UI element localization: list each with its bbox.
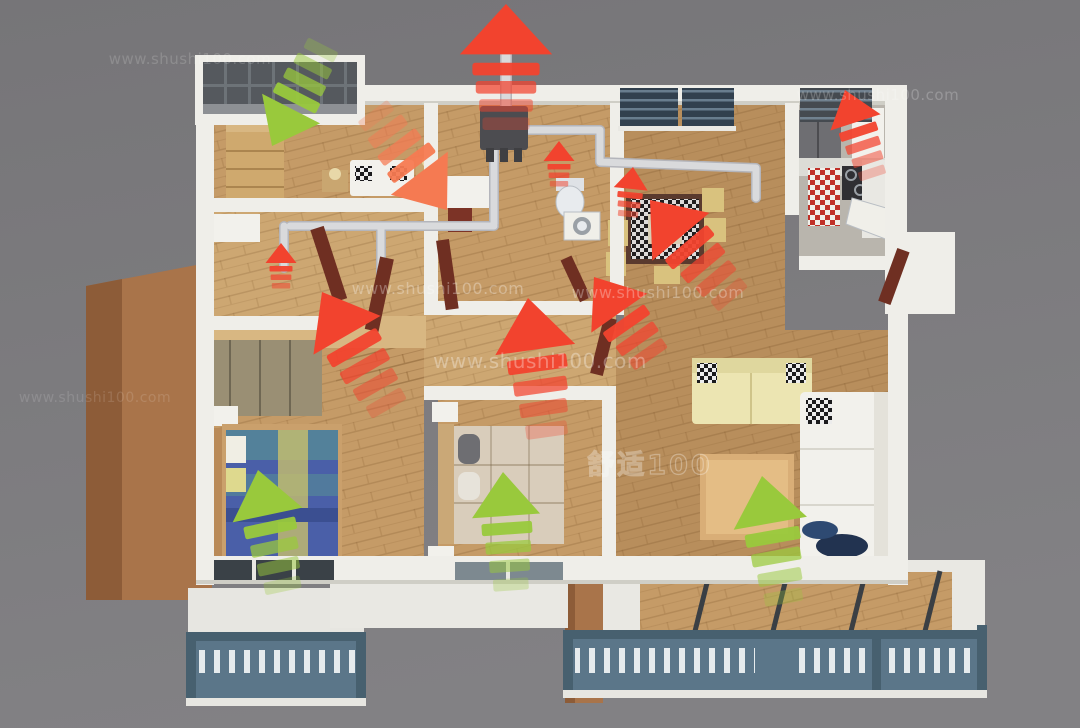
south-facade (330, 582, 568, 628)
west-wall (196, 125, 214, 585)
watermark-text: www.shushi100.com (19, 390, 171, 406)
navy-pillow (802, 521, 838, 539)
brand-watermark: 舒适100 (587, 449, 712, 481)
apartment-3d-ventilation-diagram: www.shushi100.comwww.shushi100.comwww.sh… (0, 0, 1080, 728)
watermark-text: www.shushi100.com (109, 50, 271, 68)
red-checkered-cabinet (808, 168, 840, 226)
dining-chair (702, 188, 724, 212)
kitchen-west-wall (785, 103, 799, 215)
entry-console (214, 214, 260, 242)
table-lamp (329, 168, 341, 180)
dining-chair (654, 266, 680, 284)
hrv-unit (480, 106, 528, 162)
bed2-headboard (438, 424, 454, 544)
checkered-pillow (806, 398, 832, 424)
watermark-text: www.shushi100.com (797, 86, 959, 104)
pillow (226, 436, 246, 463)
pillow-roll (458, 434, 480, 464)
checkered-pillow (786, 363, 806, 383)
pillow-roll (458, 472, 480, 500)
study-south-wall (212, 198, 430, 212)
watermark-text: www.shushi100.com (572, 283, 745, 302)
checkered-pillow (697, 363, 717, 383)
master-north-wall (196, 316, 336, 330)
east-wall-lower (888, 277, 908, 585)
pillow (226, 468, 246, 492)
watermark-text: www.shushi100.com (433, 349, 647, 373)
nightstand (432, 402, 458, 422)
nightstand (210, 406, 238, 426)
checkered-pillow (355, 166, 372, 181)
watermark-text: www.shushi100.com (352, 279, 525, 298)
dining-north-window (618, 88, 736, 131)
bathroom-counter (440, 176, 494, 208)
scene-svg: www.shushi100.comwww.shushi100.comwww.sh… (0, 0, 1080, 728)
